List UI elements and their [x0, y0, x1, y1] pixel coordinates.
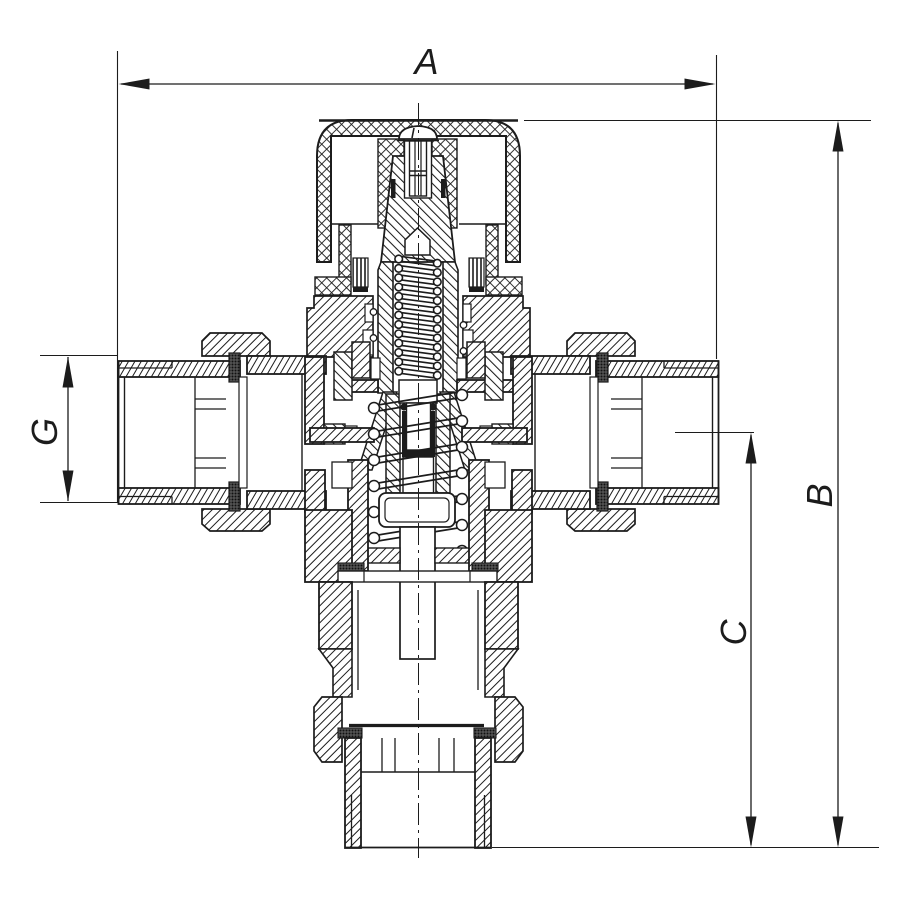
svg-text:A: A — [412, 41, 438, 82]
svg-text:G: G — [24, 418, 65, 446]
svg-text:B: B — [799, 483, 840, 507]
svg-text:C: C — [713, 619, 754, 646]
